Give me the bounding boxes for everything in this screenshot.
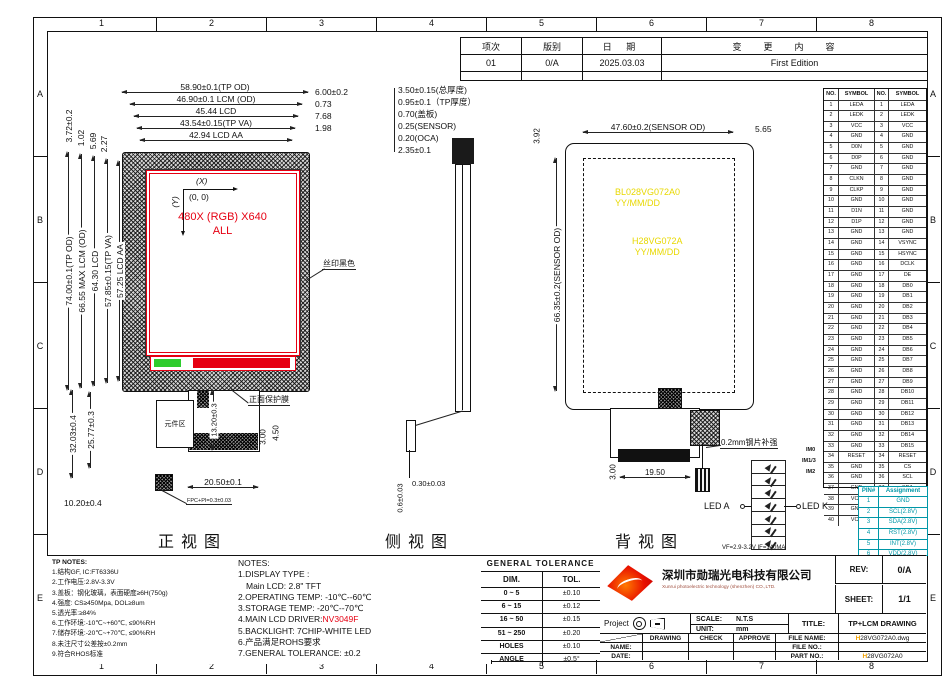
project-label: Project	[604, 619, 629, 628]
pin-row: 18GND18DB0	[824, 282, 926, 293]
file-no-value	[838, 642, 926, 651]
resolution-text: 480X (RGB) X640 ALL	[150, 210, 295, 238]
sheet-value: 1/1	[882, 585, 926, 613]
pin-row: 30GND30DB12	[824, 410, 926, 421]
dim-lcm-od-height: 66.55 MAX LCM (OD)	[81, 154, 82, 388]
dim-1-98: 1.98	[315, 123, 332, 133]
dim-lcd-width: 45.44 LCD	[134, 116, 298, 117]
dim-lcd-height: 64.30 LCD	[94, 156, 95, 386]
dim-32-03: 32.03±0.4	[72, 390, 73, 478]
marking-text-2: H28VG072A YY/MM/DD	[632, 236, 683, 258]
check-date-cell	[688, 651, 733, 660]
pin-row: 28GND28DB10	[824, 388, 926, 399]
revision-date: 2025.03.03	[583, 55, 662, 71]
file-name-label: FILE NAME:	[775, 633, 838, 642]
revision-table: 项次 版别 日 期 变更内容 01 0/A 2025.03.03 First E…	[460, 37, 928, 81]
revision-header-content: 变更内容	[662, 38, 927, 54]
pin-row: 32GND32DB14	[824, 431, 926, 442]
tp-pin-assignment-table: PIN#Assignment 1GND 2SCL(2.8V) 3SDA(2.8V…	[858, 486, 928, 556]
file-no-label: FILE NO.:	[775, 642, 838, 651]
grid-row-label: B	[33, 157, 47, 283]
grid-row-label: A	[926, 31, 940, 157]
dim-19-50: 19.50	[620, 477, 690, 478]
pin-row: 11D1N11GND	[824, 207, 926, 218]
dim-3-00-back: 3.00	[609, 464, 618, 480]
pin-row: 29GND29DB11	[824, 399, 926, 410]
silk-black-label: 丝印黑色	[322, 258, 356, 270]
tolerance-row: ANGLE±0.5°	[481, 654, 600, 666]
pin-row: 33GND33DB15	[824, 442, 926, 453]
revision-header-version: 版别	[522, 38, 583, 54]
side-view-body	[455, 164, 471, 412]
pin-assignment-header: PIN#Assignment	[859, 487, 927, 497]
company-name-cn: 深圳市勋瑞光电科技有限公司	[662, 567, 832, 583]
tp-notes: TP NOTES: 1.结构GF, IC:FT6336U2.工作电压:2.8V-…	[47, 556, 244, 664]
check-name-cell	[688, 642, 733, 651]
pin-assignment-row: 3SDA(2.8V)	[859, 518, 927, 529]
grid-col-label: 7	[707, 17, 817, 31]
note-line-6: 6.产品满足ROHS要求	[238, 637, 486, 648]
lcd-driver-value: NV3049F	[323, 614, 359, 624]
led-diode	[752, 461, 785, 474]
im13-label: IM1/3	[802, 458, 816, 464]
axis-x-label: (X)	[196, 176, 207, 186]
grid-rows-left: ABCDE	[33, 31, 47, 660]
side-view-fpc-line	[409, 450, 410, 478]
grid-col-label: 7	[707, 660, 817, 674]
pin-row: 9CLKP9GND	[824, 186, 926, 197]
fpc-stiffener-strip	[188, 433, 258, 450]
part-no-value: H28VG072A0	[838, 651, 926, 660]
led-a-terminal	[740, 504, 745, 509]
grid-col-label: 4	[377, 17, 487, 31]
dim-tp-od-width: 58.90±0.1(TP OD)	[122, 92, 308, 93]
component-area-label: 元件区	[165, 419, 186, 429]
note-line-2: 2.OPERATING TEMP: -10℃--60℃	[238, 592, 486, 603]
pin-assignment-row: 2SCL(2.8V)	[859, 508, 927, 519]
dim-3-92: 3.92	[533, 128, 542, 144]
pin-row: 19GND19DB1	[824, 292, 926, 303]
tp-note-line: 8.未注尺寸公差按±0.2mm	[52, 640, 238, 650]
thickness-dim: 0.20(OCA)	[398, 132, 476, 144]
dim-6-00: 6.00±0.2	[315, 87, 348, 97]
pin-assignment-row: 5INT(2.8V)	[859, 540, 927, 551]
pin-assignment-row: 4RST(2.8V)	[859, 529, 927, 540]
rev-label: REV:	[835, 556, 882, 584]
grid-row-label: B	[926, 157, 940, 283]
led-spec-label: VF=2.9-3.2V IF=140MA	[722, 545, 785, 551]
title-label: TITLE:	[788, 613, 838, 633]
drawing-date-cell	[642, 651, 688, 660]
thickness-dim: 2.35±0.1	[398, 144, 476, 156]
part-no-label: PART NO.:	[775, 651, 838, 660]
tp-notes-lines: 1.结构GF, IC:FT6336U2.工作电压:2.8V-3.3V3.盖板：钢…	[52, 568, 238, 660]
dim-tp-va-width: 43.54±0.15(TP VA)	[137, 128, 295, 129]
grid-row-label: D	[33, 409, 47, 535]
pin-table-body: 1LEDA1LEDA 2LEDK2LEDK 3VCC3VCC 4GND4GND …	[824, 101, 926, 526]
led-ladder	[751, 460, 786, 550]
grid-col-label: 8	[817, 660, 926, 674]
side-view-thickness-dims: 3.50±0.15(总厚度)0.95±0.1（TP厚度）0.70(盖板)0.25…	[398, 84, 476, 156]
axis-y-label: (Y)	[170, 196, 180, 207]
driver-ic-green-block	[154, 359, 181, 367]
pin-assignment-row: 1GND	[859, 497, 927, 508]
grid-col-label: 2	[157, 17, 267, 31]
grid-row-label: A	[33, 31, 47, 157]
fpc-pad-block	[155, 474, 173, 491]
grid-col-label: 5	[487, 17, 597, 31]
pin-row: 36GND36SCL	[824, 473, 926, 484]
tolerance-title: GENERAL TOLERANCE	[481, 556, 600, 572]
tp-note-line: 4.强度: CS≥450Mpa, DOL≥8um	[52, 599, 238, 609]
drawing-header: DRAWING	[642, 633, 688, 642]
tolerance-row: 6 ~ 15±0.12	[481, 601, 600, 614]
tp-notes-title: TP NOTES:	[52, 558, 238, 568]
grid-rows-right: ABCDE	[926, 31, 940, 660]
dim-13-20: 13.20±0.3	[213, 390, 214, 450]
pin-row: 1LEDA1LEDA	[824, 101, 926, 112]
pin-row: 31GND31DB13	[824, 420, 926, 431]
grid-col-label: 1	[47, 17, 157, 31]
front-view-title: 正视图	[158, 528, 227, 552]
grid-col-label: 6	[597, 17, 707, 31]
pin-row: 21GND21DB3	[824, 314, 926, 325]
note-line-3: 3.STORAGE TEMP: -20℃--70℃	[238, 603, 486, 614]
notes: NOTES: 1.DISPLAY TYPE : Main LCD: 2.8" T…	[233, 556, 492, 664]
back-view-title: 背视图	[615, 528, 684, 552]
pin-row: 14GND14VSYNC	[824, 239, 926, 250]
dim-lcm-od-width: 46.90±0.1 LCM (OD)	[130, 104, 302, 105]
grid-row-label: E	[33, 535, 47, 660]
pin-row: 4GND4GND	[824, 132, 926, 143]
led-anode-label: LED A	[704, 501, 730, 511]
company-name-block: 深圳市勋瑞光电科技有限公司 Xunrui photoelectric techn…	[662, 567, 832, 590]
grid-row-label: C	[33, 283, 47, 409]
note-line-7: 7.GENERAL TOLERANCE: ±0.2	[238, 648, 486, 659]
note-line-5: 5.BACKLIGHT: 7CHIP-WHITE LED	[238, 626, 486, 637]
note-line-4: 4.MAIN LCD DRIVER:NV3049F	[238, 614, 486, 625]
grid-col-label: 3	[267, 17, 377, 31]
signoff-grid: DRAWING CHECK APPROVE FILE NAME: H28VG07…	[600, 633, 926, 660]
dim-0-30: 0.30±0.03	[412, 479, 445, 488]
sheet-label: SHEET:	[835, 585, 882, 613]
check-header: CHECK	[688, 633, 733, 642]
tolerance-row: 51 ~ 250±0.20	[481, 628, 600, 641]
back-connector	[695, 468, 710, 492]
origin-label: (0, 0)	[189, 192, 209, 202]
tp-note-line: 9.符合RHOS标准	[52, 650, 238, 660]
led-a-wire	[744, 506, 751, 507]
note-line-1b: Main LCD: 2.8" TFT	[238, 581, 486, 592]
pin-row: 35GND35CS	[824, 463, 926, 474]
component-area-box: 元件区	[156, 400, 194, 448]
dim-3-72: 3.72±0.2	[64, 109, 74, 142]
pin-row: 20GND20DB2	[824, 303, 926, 314]
pin-row: 23GND23DB5	[824, 335, 926, 346]
dim-sensor-od-height: 66.35±0.2(SENSOR OD)	[556, 158, 557, 391]
grid-row-label: D	[926, 409, 940, 535]
pin-row: 16GND16DCLK	[824, 260, 926, 271]
pin-row: 26GND26DB8	[824, 367, 926, 378]
tp-note-line: 2.工作电压:2.8V-3.3V	[52, 578, 238, 588]
tolerance-row: HOLES±0.10	[481, 641, 600, 654]
revision-version: 0/A	[522, 55, 583, 71]
dim-0-73: 0.73	[315, 99, 332, 109]
approve-date-cell	[733, 651, 775, 660]
dim-10-20: 10.20±0.4	[64, 498, 102, 508]
dim-5-65: 5.65	[755, 124, 772, 134]
back-fpc-connector-bar	[618, 449, 690, 462]
thickness-dim: 0.95±0.1（TP厚度）	[398, 96, 476, 108]
pin-row: 34RESET34RESET	[824, 452, 926, 463]
led-k-wire	[784, 506, 796, 507]
dim-7-68: 7.68	[315, 111, 332, 121]
protect-film-label: 正面保护膜	[248, 394, 290, 406]
pin-row: 5D0N5GND	[824, 143, 926, 154]
tp-note-line: 5.透光率:≥84%	[52, 609, 238, 619]
revision-header-date: 日 期	[583, 38, 662, 54]
led-k-terminal	[796, 504, 801, 509]
pin-row: 3VCC3VCC	[824, 122, 926, 133]
pin-row: 7GND7GND	[824, 164, 926, 175]
steel-reinforcement	[690, 410, 720, 446]
notes-title: NOTES:	[238, 558, 486, 569]
bonding-red-block	[193, 358, 290, 368]
name-label: NAME:	[600, 642, 642, 651]
pin-table-header: NO.SYMBOLNO.SYMBOL	[824, 89, 926, 101]
tp-note-line: 1.结构GF, IC:FT6336U	[52, 568, 238, 578]
company-cell: 深圳市勋瑞光电科技有限公司 Xunrui photoelectric techn…	[600, 556, 835, 613]
thickness-dim: 0.25(SENSOR)	[398, 120, 476, 132]
tp-note-line: 3.盖板：钢化玻璃，表面硬度≥6H(750g)	[52, 589, 238, 599]
approve-name-cell	[733, 642, 775, 651]
scale-row: SCALE: N.T.S	[691, 614, 788, 624]
date-label: DATE:	[600, 651, 642, 660]
company-name-en: Xunrui photoelectric technology (shenzhe…	[662, 585, 832, 590]
marking-text-1: BL028VG072A0 YY/MM/DD	[615, 187, 680, 209]
company-logo	[605, 561, 657, 605]
im2-label: IM2	[806, 469, 815, 475]
grid-row-label: E	[926, 535, 940, 660]
led-diode	[752, 474, 785, 487]
tp-note-line: 7.储存环境:-20℃~+70℃, ≤90%RH	[52, 629, 238, 639]
pin-table: NO.SYMBOLNO.SYMBOL 1LEDA1LEDA 2LEDK2LEDK…	[823, 88, 927, 488]
tolerance-body: 0 ~ 5±0.10 6 ~ 15±0.12 16 ~ 50±0.15 51 ~…	[481, 588, 600, 666]
dim-tp-va-height: 57.85±0.15(TP VA)	[107, 159, 108, 383]
grid-col-label: 6	[597, 660, 707, 674]
scale-unit-cell: SCALE: N.T.S UNIT: mm	[690, 613, 788, 633]
tp-note-line: 6.工作环境:-10℃~+60℃, ≤90%RH	[52, 619, 238, 629]
dim-sensor-od-width: 47.60±0.2(SENSOR OD)	[583, 132, 733, 133]
dim-3-00-front: 3.00	[259, 429, 268, 445]
pin-row: 8CLKN8GND	[824, 175, 926, 186]
pin-row: 13GND13GND	[824, 228, 926, 239]
side-view-title: 侧视图	[385, 528, 454, 552]
grid-row-label: C	[926, 283, 940, 409]
rev-value: 0/A	[882, 556, 926, 584]
back-fpc-line	[702, 444, 703, 470]
pin-row: 2LEDK2LEDK	[824, 111, 926, 122]
drawing-sheet: 12345678 12345678 ABCDE ABCDE 项次 版别 日 期 …	[0, 0, 947, 691]
fpc-tab	[197, 391, 209, 408]
dim-tp-od-height: 74.00±0.1(TP OD)	[68, 152, 69, 390]
x-axis-arrow	[233, 187, 238, 191]
pin-row: 27GND27DB9	[824, 378, 926, 389]
side-view-fpc-tail	[406, 420, 416, 452]
pin-row: 15GND15HSYNC	[824, 250, 926, 261]
pin-row: 25GND25DB7	[824, 356, 926, 367]
tolerance-header: DIM.TOL.	[481, 572, 600, 588]
tolerance-row: 16 ~ 50±0.15	[481, 614, 600, 627]
projection-cone-icon	[650, 618, 665, 630]
led-diode	[752, 499, 785, 512]
general-tolerance-table: GENERAL TOLERANCE DIM.TOL. 0 ~ 5±0.10 6 …	[481, 556, 601, 660]
thickness-dim: 3.50±0.15(总厚度)	[398, 84, 476, 96]
led-diode	[752, 486, 785, 499]
pin-row: 12D1P12GND	[824, 218, 926, 229]
pin-row: 22GND22DB4	[824, 324, 926, 335]
led-diode	[752, 512, 785, 525]
pin-row: 17GND17DE	[824, 271, 926, 282]
dim-lcd-aa-height: 57.25 LCD AA	[119, 161, 120, 381]
drawing-name-cell	[642, 642, 688, 651]
side-dims-leader	[394, 88, 395, 152]
dim-0-6: 0.6±0.03	[396, 483, 405, 512]
im0-label: IM0	[806, 447, 815, 453]
note-line-1: 1.DISPLAY TYPE :	[238, 569, 486, 580]
side-view-body-line	[462, 164, 463, 410]
grid-col-label: 8	[817, 17, 926, 31]
pin-row: 24GND24DB6	[824, 346, 926, 357]
projection-cell: Project	[600, 613, 690, 633]
dim-1-02: 1.02	[76, 130, 86, 147]
pin-row: 6D0P6GND	[824, 154, 926, 165]
revision-header-item: 项次	[461, 38, 522, 54]
fpc-note-label: FPC+PI=0.3±0.03	[186, 498, 232, 505]
title-value: TP+LCM DRAWING	[838, 613, 926, 633]
revision-item: 01	[461, 55, 522, 71]
approve-header: APPROVE	[733, 633, 775, 642]
dim-lcd-aa-width: 42.94 LCD AA	[140, 140, 292, 141]
dim-25-77: 25.77±0.3	[90, 392, 91, 468]
dim-4-50-front: 4.50	[272, 425, 281, 441]
dim-5-69: 5.69	[88, 133, 98, 150]
dim-20-50: 20.50±0.1	[188, 487, 258, 488]
x-axis-line	[183, 189, 233, 190]
led-diode	[752, 525, 785, 538]
dim-2-27: 2.27	[99, 136, 109, 153]
signoff-corner	[600, 633, 642, 642]
file-name-value: H28VG072A0.dwg	[838, 633, 926, 642]
thickness-dim: 0.70(盖板)	[398, 108, 476, 120]
tolerance-row: 0 ~ 5±0.10	[481, 588, 600, 601]
grid-columns-top: 12345678	[47, 17, 926, 31]
projection-circle-icon	[633, 617, 646, 630]
revision-content: First Edition	[662, 55, 927, 71]
pin-row: 10GND10GND	[824, 196, 926, 207]
pin-assignment-body: 1GND 2SCL(2.8V) 3SDA(2.8V) 4RST(2.8V) 5I…	[859, 497, 927, 560]
steel-note-label: 0.2mm钢片补强	[720, 437, 778, 449]
title-block: 深圳市勋瑞光电科技有限公司 Xunrui photoelectric techn…	[600, 556, 926, 660]
back-fpc-fold-tab	[658, 388, 682, 409]
